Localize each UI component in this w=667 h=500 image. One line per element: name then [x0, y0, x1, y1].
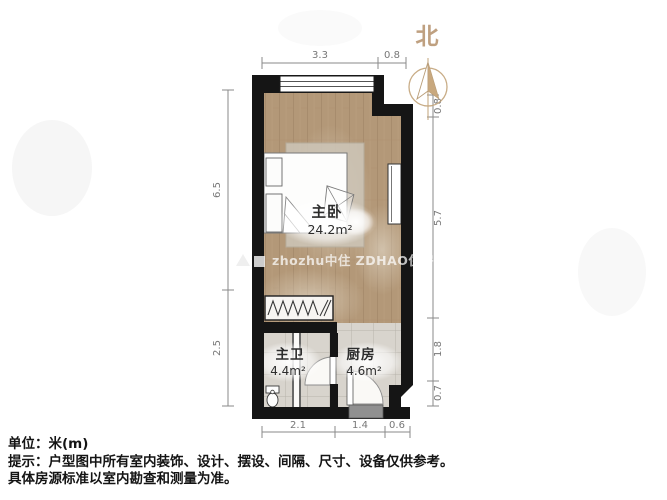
kitchen-label: 厨房: [347, 346, 376, 363]
dim-bottom-1: 2.1: [290, 420, 306, 431]
bathroom-label: 主卫: [276, 346, 305, 363]
floorplan-canvas: 主卧 24.2m² 主卫 4.4m² 厨房 4.6m² 3.3 0.8 6.5 …: [0, 0, 667, 500]
dim-right-4: 0.7: [433, 385, 444, 401]
watermark-logo-square: [254, 256, 265, 267]
unit-note: 单位：米(m): [8, 435, 88, 452]
dim-right-1: 0.8: [433, 98, 444, 114]
floorplan-image: 主卧 24.2m² 主卫 4.4m² 厨房 4.6m² 3.3 0.8 6.5 …: [0, 0, 667, 500]
kitchen-area: 4.6m²: [346, 364, 382, 378]
dim-bottom-3: 0.6: [389, 420, 405, 431]
bedroom-area: 24.2m²: [307, 222, 352, 237]
dim-right-2: 5.7: [433, 210, 444, 226]
dim-left-1: 6.5: [212, 182, 223, 198]
window: [280, 76, 374, 92]
bedroom-label: 主卧: [312, 203, 343, 221]
north-label: 北: [416, 24, 439, 50]
wall-radiator: [388, 164, 401, 224]
bathroom-area: 4.4m²: [270, 364, 306, 378]
pillow: [266, 158, 282, 186]
ghost-watermark-blob: [12, 120, 92, 216]
entry-threshold: [349, 405, 383, 418]
dim-left-2: 2.5: [212, 340, 223, 356]
tip-note-line1: 提示：户型图中所有室内装饰、设计、摆设、间隔、尺寸、设备仅供参考。: [8, 453, 454, 470]
toilet-icon: [266, 386, 279, 407]
dim-top-1: 3.3: [312, 50, 328, 61]
dim-right-3: 1.8: [433, 341, 444, 357]
tip-note-line2: 具体房源标准以室内勘查和测量为准。: [7, 470, 238, 487]
radiator-icon: [265, 296, 333, 320]
watermark-text: zhozhu中住 ZDHAO住房网: [272, 253, 447, 268]
dim-bottom-2: 1.4: [352, 420, 368, 431]
ghost-watermark-blob: [578, 228, 646, 316]
ghost-watermark-blob: [278, 10, 362, 46]
dim-top-2: 0.8: [384, 50, 400, 61]
